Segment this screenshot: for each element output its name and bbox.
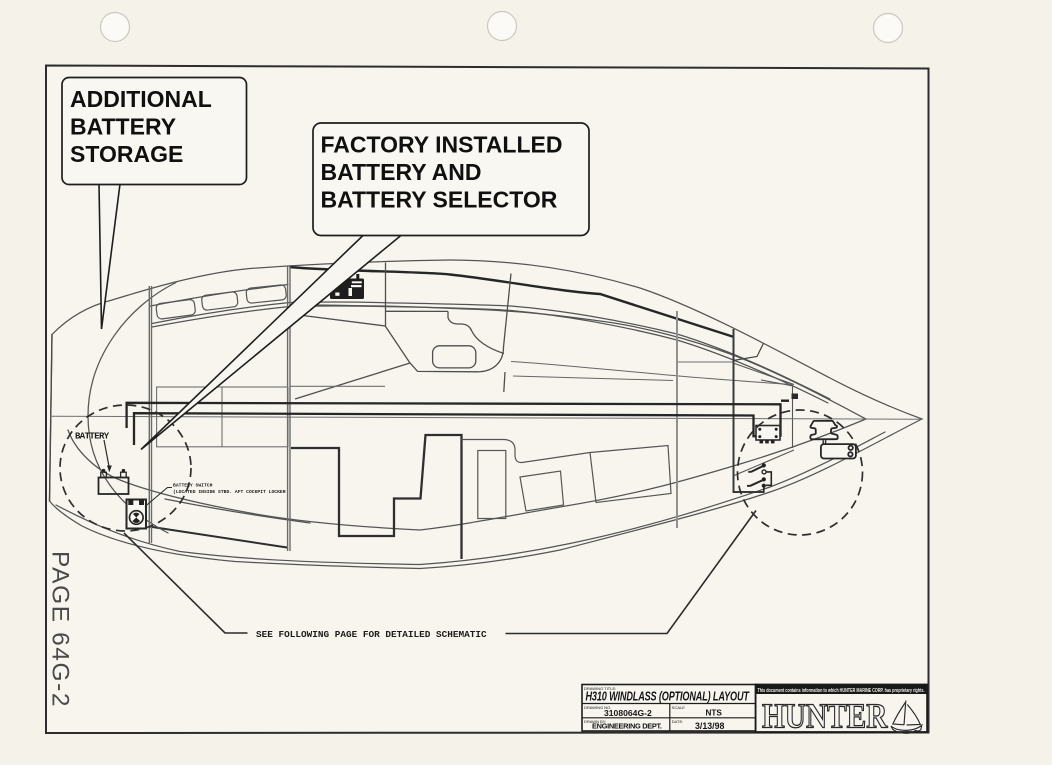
svg-text:This document contains informa: This document contains information to wh…	[758, 688, 925, 694]
svg-text:H310 WINDLASS (OPTIONAL) LAYOU: H310 WINDLASS (OPTIONAL) LAYOUT	[586, 690, 750, 704]
svg-text:ENGINEERING DEPT.: ENGINEERING DEPT.	[592, 722, 662, 731]
svg-text:BATTERY SELECTOR: BATTERY SELECTOR	[321, 187, 558, 213]
svg-text:ADDITIONAL: ADDITIONAL	[70, 86, 212, 112]
svg-text:STORAGE: STORAGE	[70, 141, 183, 167]
svg-text:PAGE 64G-2: PAGE 64G-2	[47, 551, 74, 708]
svg-text:DATE:: DATE:	[672, 719, 683, 724]
svg-text:3/13/98: 3/13/98	[695, 721, 724, 731]
svg-text:HUNTER: HUNTER	[762, 696, 888, 735]
svg-text:SEE FOLLOWING PAGE FOR DETAILE: SEE FOLLOWING PAGE FOR DETAILED SCHEMATI…	[256, 629, 487, 640]
svg-text:3108064G-2: 3108064G-2	[604, 708, 652, 718]
svg-text:BATTERY: BATTERY	[70, 114, 176, 140]
svg-text:NTS: NTS	[706, 709, 723, 718]
svg-text:FACTORY INSTALLED: FACTORY INSTALLED	[321, 132, 563, 158]
svg-text:BATTERY SWITCH: BATTERY SWITCH	[173, 483, 213, 489]
svg-text:SCALE: SCALE	[672, 705, 685, 710]
svg-text:(LOCATED INSIDE STBD. AFT COCK: (LOCATED INSIDE STBD. AFT COCKPIT LOCKER	[173, 489, 286, 495]
svg-text:BATTERY: BATTERY	[75, 432, 110, 442]
svg-text:BATTERY AND: BATTERY AND	[321, 159, 482, 185]
